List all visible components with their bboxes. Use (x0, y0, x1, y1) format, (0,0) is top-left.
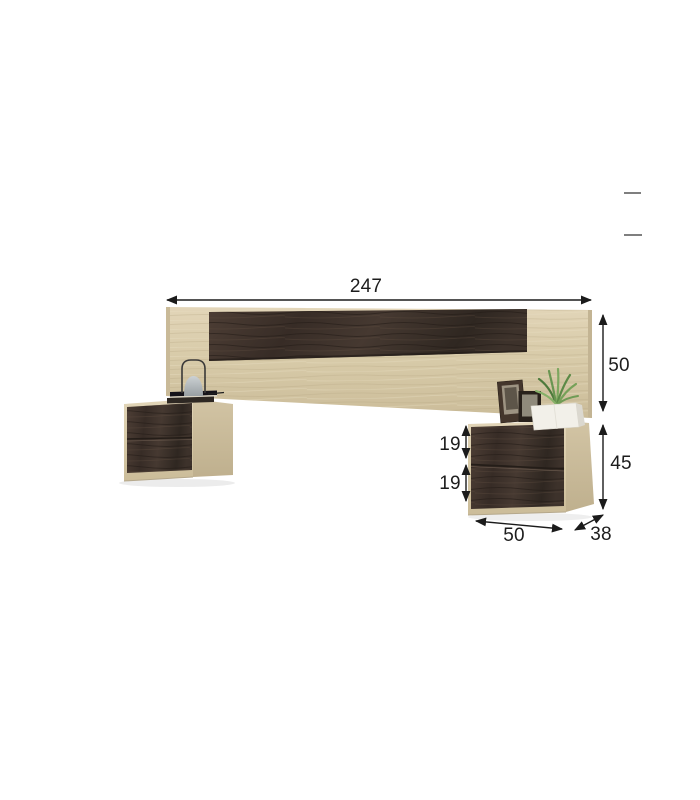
dim-label-headboard-height: 50 (604, 356, 634, 375)
right-nightstand-drawers (471, 424, 564, 509)
left-nightstand (119, 399, 235, 487)
product-dimension-diagram: 247 50 45 19 19 50 38 (0, 0, 700, 800)
planter-box (531, 403, 585, 430)
page-artifact-dash-2 (624, 234, 642, 236)
dim-label-nightstand-width: 50 (495, 526, 533, 545)
left-nightstand-side (193, 399, 233, 477)
headboard-right-edge (588, 310, 592, 418)
right-nightstand-side (566, 421, 594, 512)
dim-label-nightstand-depth: 38 (584, 525, 618, 544)
furniture-illustration (0, 0, 700, 800)
dim-label-bottom-drawer: 19 (436, 474, 464, 493)
dim-label-headboard-width: 247 (337, 277, 395, 296)
dim-label-top-drawer: 19 (436, 435, 464, 454)
headboard-left-edge (166, 307, 170, 396)
headboard-accent-panel (209, 309, 527, 361)
left-nightstand-drawers (127, 403, 192, 473)
dim-label-nightstand-height: 45 (606, 454, 636, 473)
page-artifact-dash-1 (624, 192, 641, 194)
right-nightstand (468, 421, 594, 521)
